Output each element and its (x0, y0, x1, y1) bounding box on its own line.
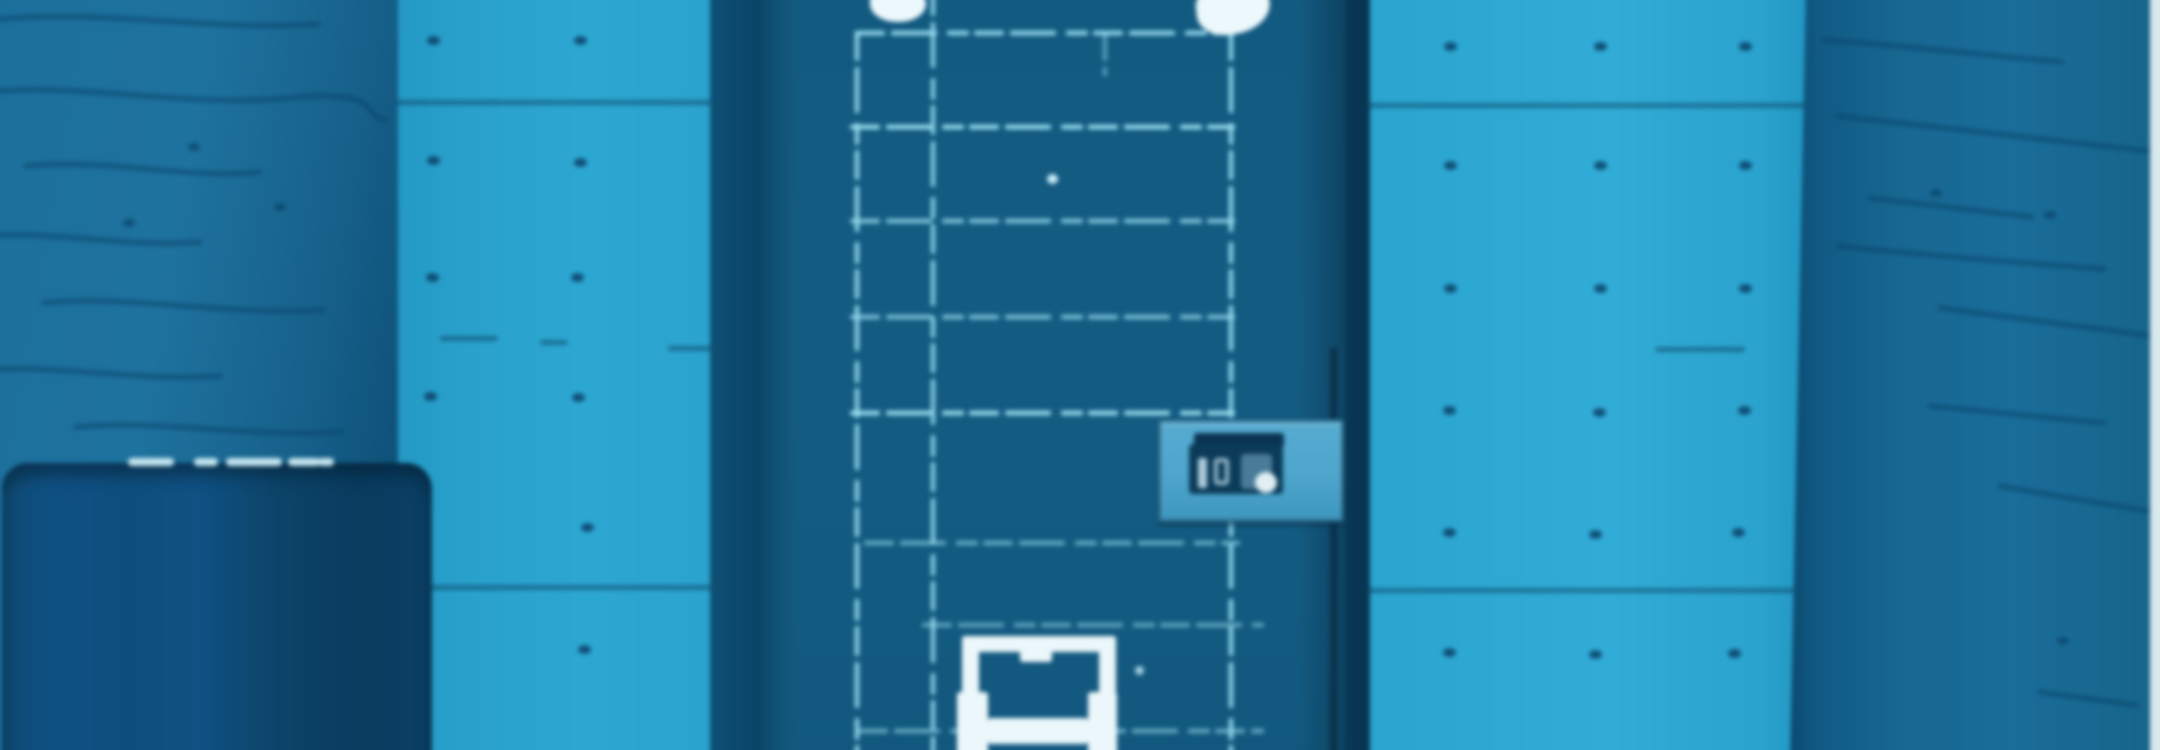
tie-hole (571, 273, 584, 282)
crack-line (76, 425, 342, 433)
tie-hole (1593, 408, 1606, 417)
wall-spot (123, 219, 135, 227)
tie-hole (581, 523, 594, 532)
tie-hole (1443, 528, 1456, 537)
tie-hole (1444, 42, 1457, 51)
tie-hole (1443, 648, 1456, 657)
left-formwork-wall (386, 0, 712, 750)
hatch-bar (957, 692, 988, 750)
tie-hole (1739, 161, 1752, 170)
formwork-joint (668, 346, 712, 351)
tie-hole (1443, 406, 1456, 415)
door-sign-plate (1158, 419, 1344, 522)
photo-blur-layer (0, 0, 2160, 750)
crack-line (1824, 40, 2062, 62)
formwork-joint (386, 585, 712, 590)
hatch-bar (1020, 650, 1052, 662)
tie-hole (578, 645, 591, 654)
tie-hole (1738, 406, 1751, 415)
tie-hole (1594, 284, 1607, 293)
bin-top-highlight (128, 458, 174, 466)
tie-hole (1589, 650, 1602, 659)
crack-line (1837, 116, 2158, 152)
tie-hole (1444, 284, 1457, 293)
tie-hole (1728, 649, 1741, 658)
right-concrete-wall (1790, 0, 2160, 750)
formwork-joint (386, 100, 712, 105)
bin-top-highlight (318, 458, 334, 466)
formwork-joint (1368, 588, 1798, 593)
tie-hole (427, 36, 440, 45)
wall-spot (2057, 637, 2069, 645)
wall-spot (274, 203, 286, 211)
crack-line (1940, 308, 2160, 337)
right-wall-cracks (1790, 0, 2160, 750)
hatch-bar (1099, 636, 1116, 700)
tie-hole (1444, 161, 1457, 170)
crack-line (44, 301, 323, 311)
wall-spot (1930, 189, 1942, 197)
bin-top-highlight (226, 458, 282, 466)
crack-line (0, 235, 200, 243)
sign-glyph-ring (1214, 458, 1229, 485)
hatch-bar (988, 718, 1088, 744)
crack-line (2040, 692, 2136, 705)
door-recess (710, 0, 1370, 750)
tie-hole (574, 158, 587, 167)
door-bright-dot (1047, 174, 1058, 184)
crack-line (0, 90, 386, 120)
hatch-bar (962, 636, 979, 698)
tie-hole (1739, 284, 1752, 293)
sign-label (1189, 444, 1283, 494)
wall-spot (188, 143, 200, 151)
crack-line (1930, 406, 2104, 423)
hatch-bar (1088, 692, 1117, 750)
crack-line (2000, 486, 2160, 513)
wall-spot (2044, 211, 2056, 219)
tie-hole (426, 273, 439, 282)
tie-hole (1594, 42, 1607, 51)
crack-line (1838, 246, 2104, 269)
tie-hole (1739, 42, 1752, 51)
tie-hole (1589, 530, 1602, 539)
crack-line (0, 17, 318, 26)
tie-hole (1732, 528, 1745, 537)
right-concrete-wall-surface (1790, 0, 2160, 750)
door-small-speck (1135, 666, 1144, 675)
photo-scene (0, 0, 2160, 750)
bin-top-highlight (194, 458, 218, 466)
tie-hole (424, 392, 437, 401)
tie-hole (427, 156, 440, 165)
right-formwork-wall (1368, 0, 1810, 750)
tie-hole (574, 36, 587, 45)
formwork-joint (440, 336, 498, 341)
tie-hole (1594, 161, 1607, 170)
formwork-joint (540, 340, 568, 345)
formwork-joint (1655, 347, 1745, 352)
crack-line (26, 164, 260, 174)
left-formwork-wall-surface (386, 0, 712, 750)
frame-edge-strip (2150, 0, 2160, 750)
tie-hole (572, 393, 585, 402)
crack-line (0, 369, 220, 377)
sign-white-speck (1255, 472, 1277, 493)
sign-glyph-bar (1198, 458, 1207, 488)
bin-top-highlight (288, 458, 320, 466)
door-edge-gap-line (1330, 347, 1337, 750)
formwork-joint (1368, 103, 1810, 108)
crack-line (1870, 198, 2032, 217)
door-recess-surface (710, 0, 1370, 750)
dark-bin (2, 463, 432, 750)
right-formwork-wall-surface (1368, 0, 1810, 750)
